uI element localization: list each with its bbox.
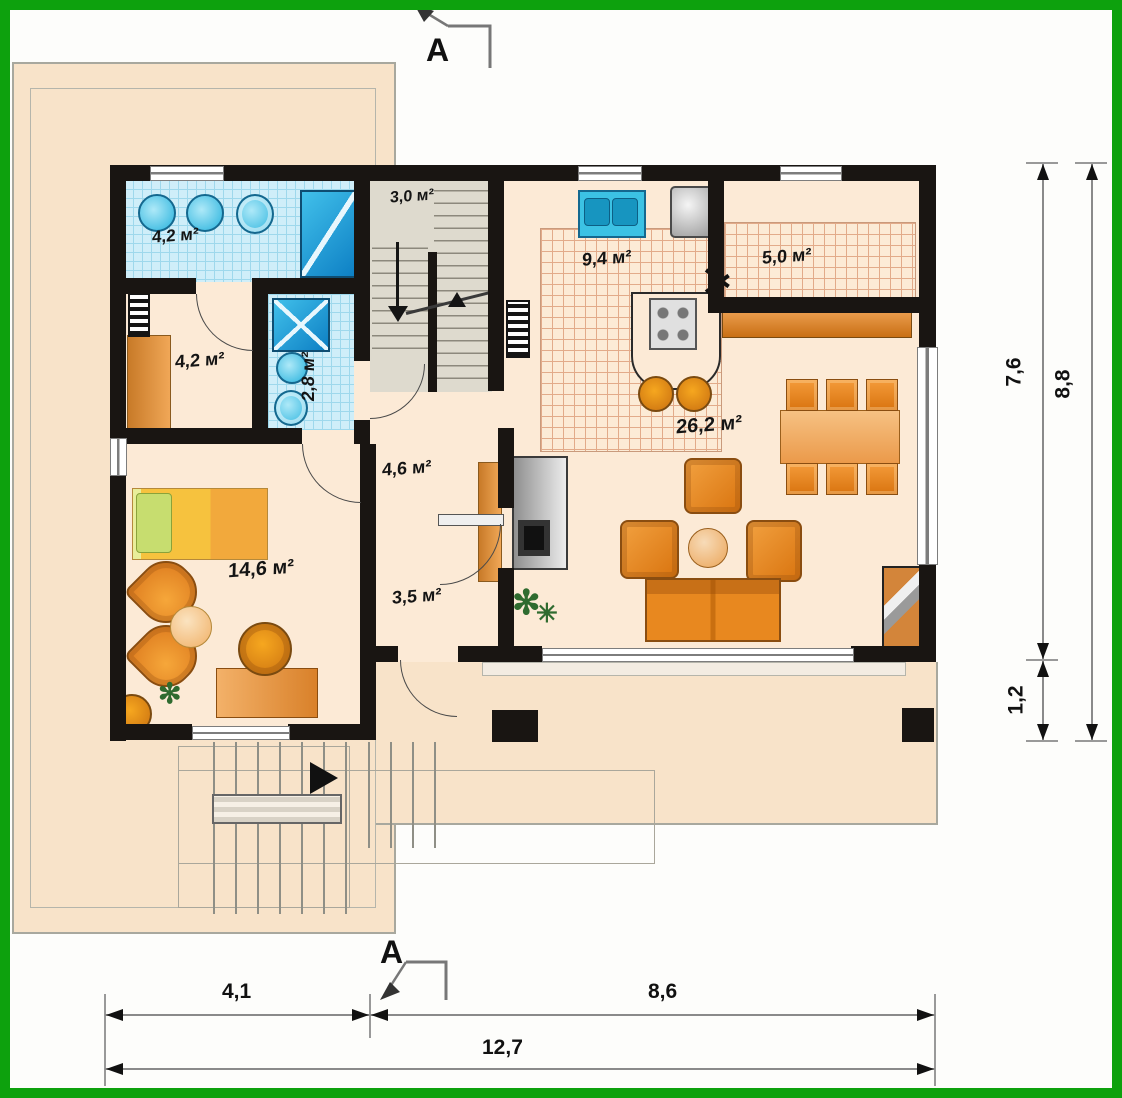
dim-arrow [106,1063,123,1075]
wall-corridor-bottom [458,646,480,662]
dining-chair [826,463,858,495]
terrace-sill-band [482,662,906,676]
pantry-floor-tiles [724,222,916,302]
kitchen-sink-bowl [584,198,610,226]
wall-bottom-right [851,646,936,662]
room-label-dressing: 4,2 м² [175,348,225,373]
room-label-kitchen: 9,4 м² [582,246,632,271]
desk-chair [238,622,292,676]
dim-arrow [1037,643,1049,659]
terrace-pillar [902,708,934,742]
dim-arrow [1086,164,1098,180]
wall-stair-kitchen [488,165,504,391]
sideboard [722,312,912,338]
window-living-terrace [542,648,854,662]
floor-plan: ✻ ✳ ✻ 4,2 м² 4,2 м² 2,8 м² 3,0 м² [0,0,1122,1098]
armchair [746,520,802,582]
bed-pillow [136,493,172,553]
section-letter: A [426,32,449,69]
coffee-table [688,528,728,568]
entry-step-line [235,742,237,914]
shower-cabin [272,298,330,352]
room-label-wc: 2,8 м² [298,351,319,403]
dim-label-8-8: 8,8 [1052,369,1076,398]
entry-step-line [434,742,436,848]
section-mark-bottom: A [362,938,457,1008]
wall-bath-stair [354,420,370,444]
room-label-living: 26,2 м² [676,412,743,440]
entry-arrow-icon [310,762,338,794]
dim-arrow [917,1063,934,1075]
wall-dressing-wc [252,294,268,444]
room-label-bathroom: 4,2 м² [152,224,199,247]
stair-up-arrow-icon [448,292,466,307]
bar-stool [638,376,674,412]
dim-label-7-6: 7,6 [1003,357,1027,386]
wall-pantry-bottom [708,297,920,313]
terrace-pillar [492,710,538,742]
bar-stool [676,376,712,412]
dim-tick [1075,740,1107,742]
dim-tick [1026,740,1058,742]
dining-chair [866,463,898,495]
wall-corridor-living [498,568,514,662]
doormat [212,794,342,824]
dining-chair [786,463,818,495]
dim-arrow [371,1009,388,1021]
dim-arrow [1037,164,1049,180]
stair-down-arrow-icon [396,242,399,308]
radiator [506,300,530,358]
dim-label-4-1: 4,1 [222,980,251,1004]
dim-arrow [1086,724,1098,740]
dim-ext-line [934,994,936,1086]
room-label-corridor: 3,5 м² [392,584,442,609]
room-label-bedroom: 14,6 м² [228,556,295,584]
window-kitchen [578,166,642,181]
stair-down-arrow-icon [388,306,408,322]
wall-right-upper [919,165,936,347]
section-flag-icon [402,4,497,74]
dining-chair [786,379,818,411]
armchair [684,458,742,514]
plant-icon: ✻ [158,680,181,708]
wall-bath-stair [354,165,370,361]
section-letter: A [380,934,403,971]
wall-hall-bedroom [110,428,302,444]
room-label-pantry: 5,0 м² [762,244,812,269]
wall-bedroom-corridor [360,444,376,740]
fireplace [882,566,924,650]
room-label-staircase: 3,0 м² [390,186,434,207]
entry-step-line [301,742,303,914]
dim-label-1-2: 1,2 [1005,685,1029,714]
dim-arrow [1037,661,1049,677]
window-bedroom [192,726,290,740]
shower-cabin [300,190,358,278]
window-left-small [110,438,127,476]
entry-step-line [412,742,414,848]
dining-table [780,410,900,464]
wall-corridor-bottom [375,646,398,662]
dim-line-bottom-2 [105,1068,935,1070]
window-living-right [917,347,938,565]
dim-line-right-outer [1091,163,1093,742]
dim-arrow [352,1009,369,1021]
plant-icon: ✳ [536,600,558,626]
room-label-hall: 4,6 м² [382,456,432,481]
entry-step-line [390,742,392,848]
stair-divider [428,252,437,392]
dining-chair [866,379,898,411]
entry-step-line [345,742,347,914]
stove [649,298,697,350]
window-pantry [780,166,842,181]
dim-arrow [1037,724,1049,740]
tv-screen [518,520,550,556]
armchair [620,520,679,579]
section-flag-icon [362,938,457,1008]
wall-pantry-left [708,181,724,303]
kitchen-sink-bowl [612,198,638,226]
wall-corridor-living [498,428,514,508]
stair-flight-left [372,238,428,360]
entry-step-line [279,742,281,914]
dim-arrow [917,1009,934,1021]
entry-step-line [368,742,370,848]
side-table [170,606,212,648]
entry-step-line [257,742,259,914]
toilet [236,194,274,234]
window-bathroom [150,166,224,181]
wall-bath-bottom [252,278,360,294]
wall-bath-bottom [110,278,196,294]
dim-arrow [106,1009,123,1021]
entry-step-line [213,742,215,914]
dining-chair [826,379,858,411]
dim-label-8-6: 8,6 [648,980,677,1004]
stair-flight-right [434,184,490,390]
wall-bedroom-bottom [110,724,192,740]
wardrobe-cabinet [127,335,171,432]
sofa [645,578,781,642]
dim-label-12-7: 12,7 [482,1036,523,1060]
dim-line-bottom-1 [105,1014,935,1016]
section-mark-top: A [402,4,497,74]
